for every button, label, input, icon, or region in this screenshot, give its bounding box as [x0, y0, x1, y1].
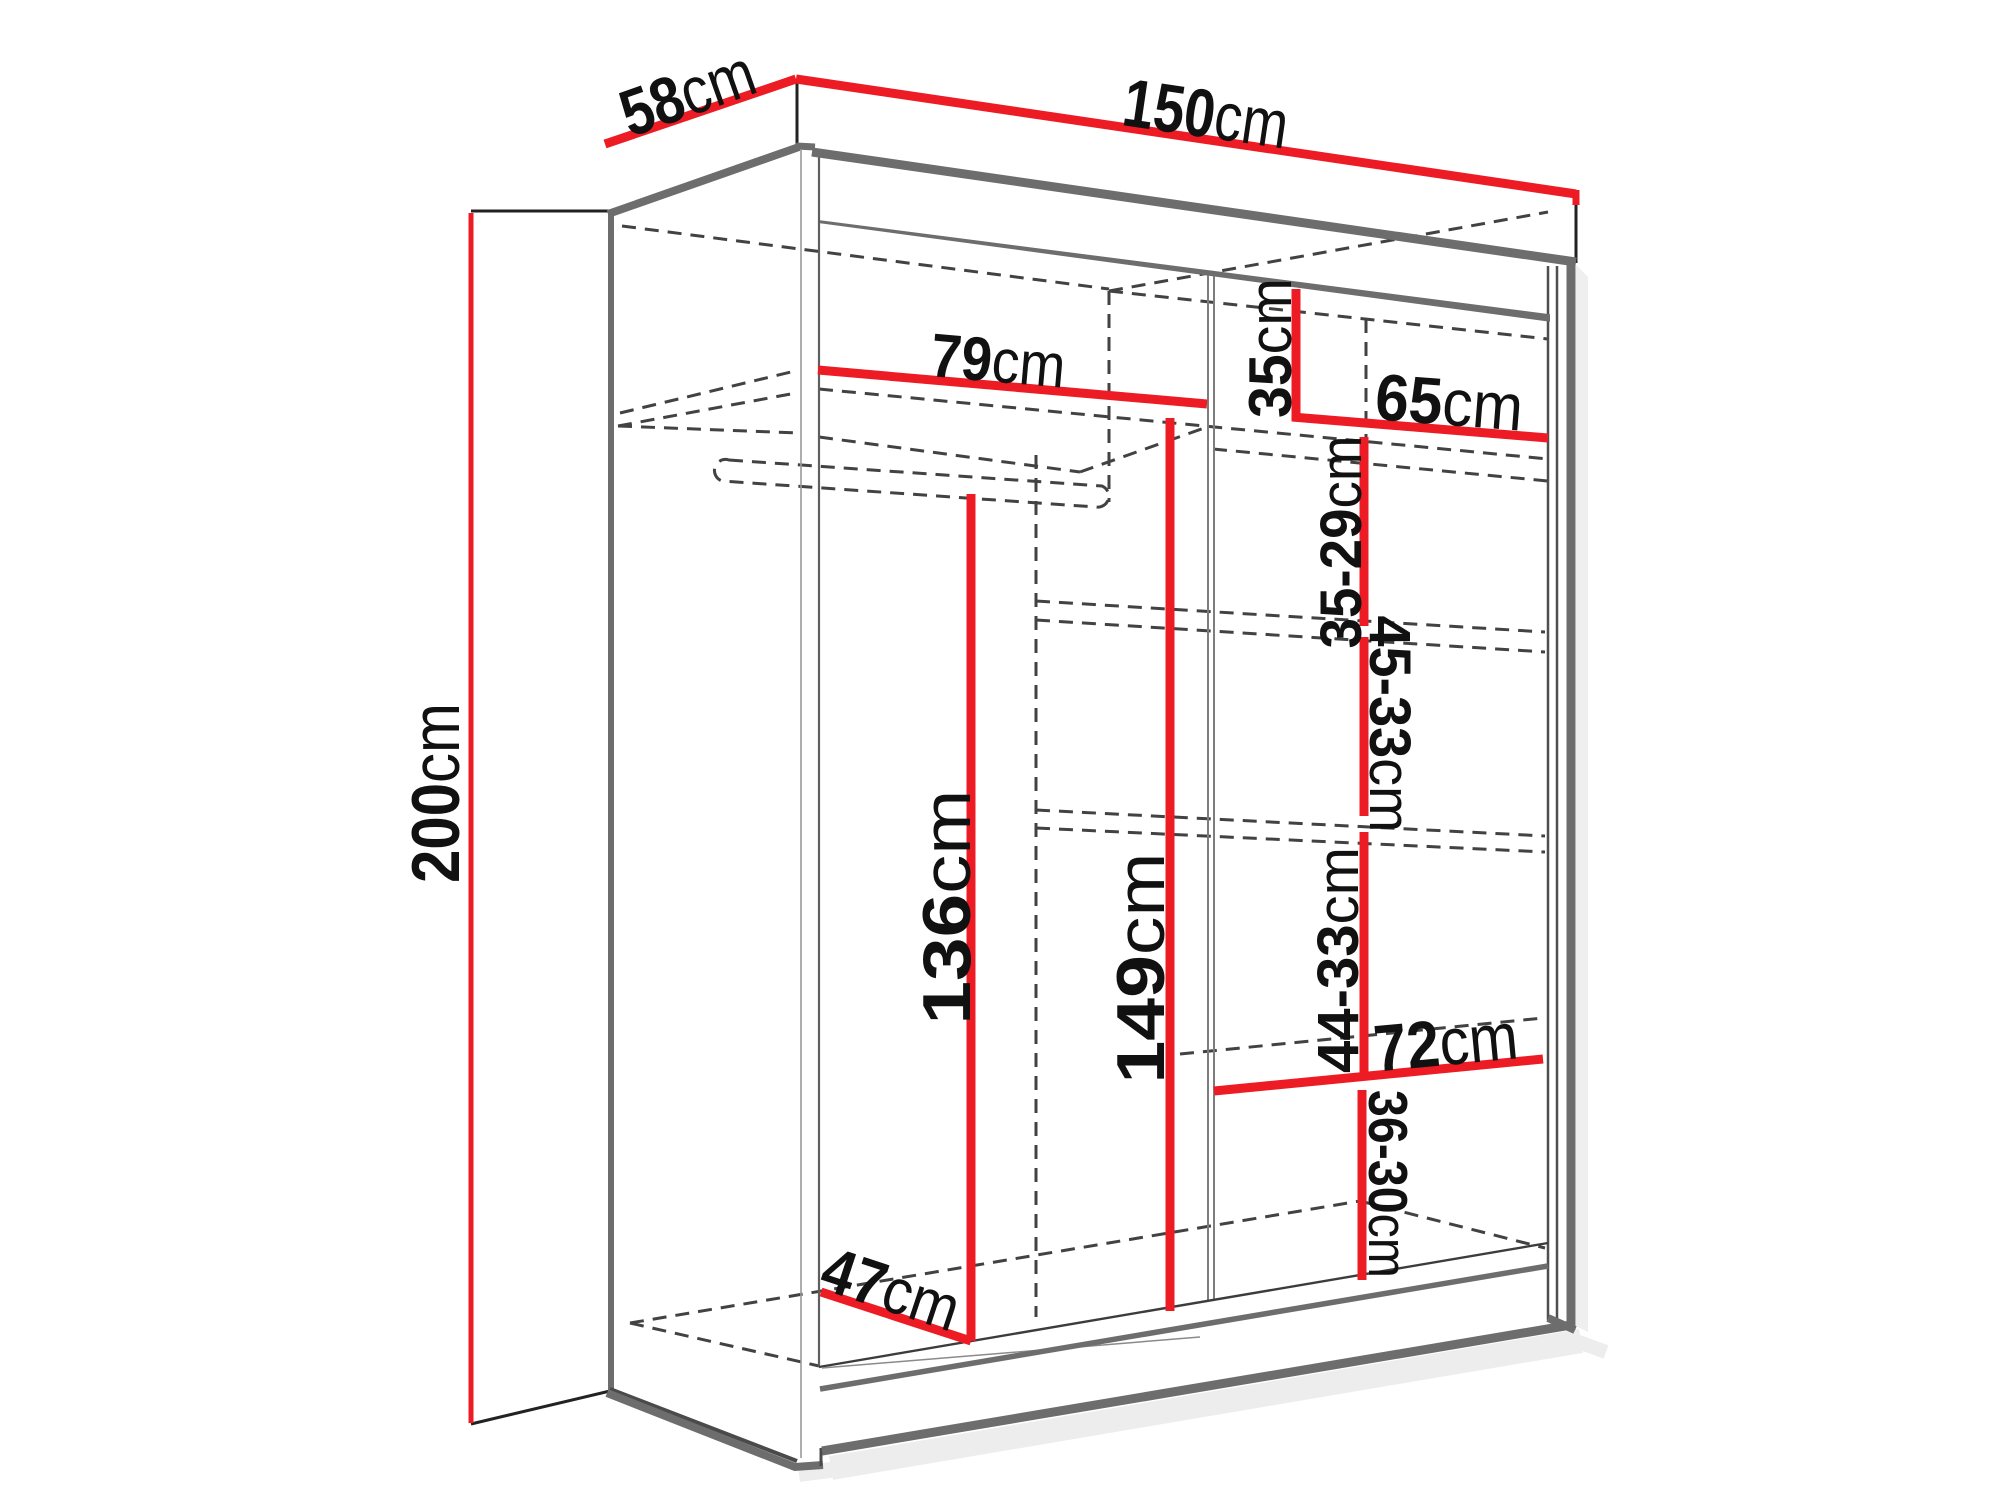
- svg-text:35cm: 35cm: [1237, 278, 1304, 418]
- svg-text:200cm: 200cm: [398, 703, 474, 883]
- svg-text:136cm: 136cm: [909, 790, 985, 1025]
- svg-text:72cm: 72cm: [1371, 998, 1521, 1085]
- svg-text:65cm: 65cm: [1373, 359, 1526, 444]
- svg-text:79cm: 79cm: [928, 321, 1069, 402]
- svg-text:36-30cm: 36-30cm: [1357, 1090, 1419, 1278]
- svg-text:44-33cm: 44-33cm: [1306, 847, 1371, 1073]
- svg-text:45-33cm: 45-33cm: [1358, 616, 1423, 833]
- svg-text:149cm: 149cm: [1103, 853, 1179, 1084]
